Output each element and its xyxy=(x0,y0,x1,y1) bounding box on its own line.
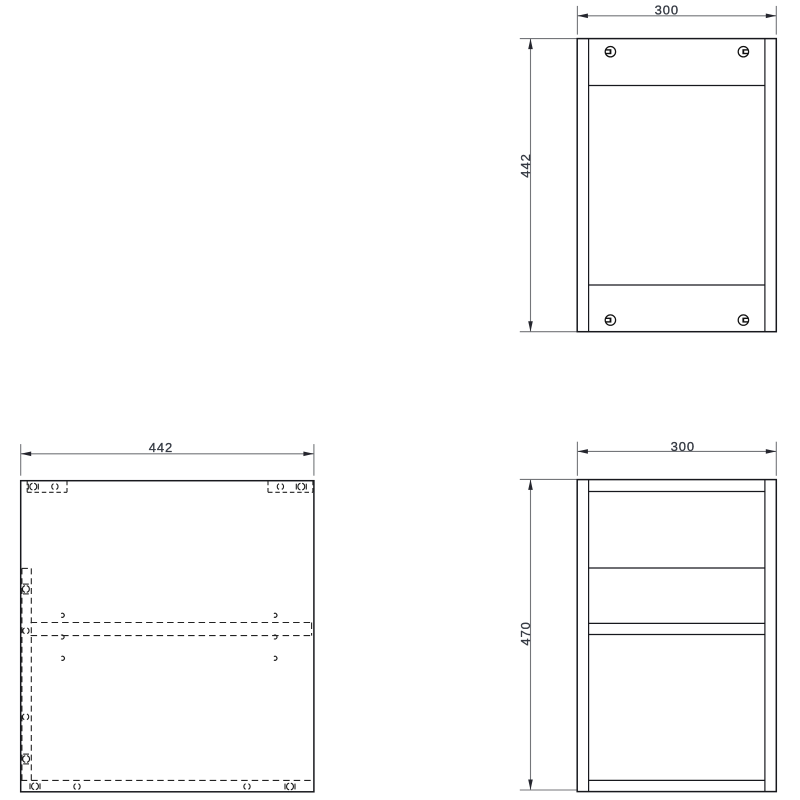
svg-text:470: 470 xyxy=(518,621,533,645)
svg-text:442: 442 xyxy=(149,440,173,455)
svg-text:300: 300 xyxy=(655,3,679,18)
svg-text:442: 442 xyxy=(518,153,533,177)
svg-text:300: 300 xyxy=(671,439,695,454)
